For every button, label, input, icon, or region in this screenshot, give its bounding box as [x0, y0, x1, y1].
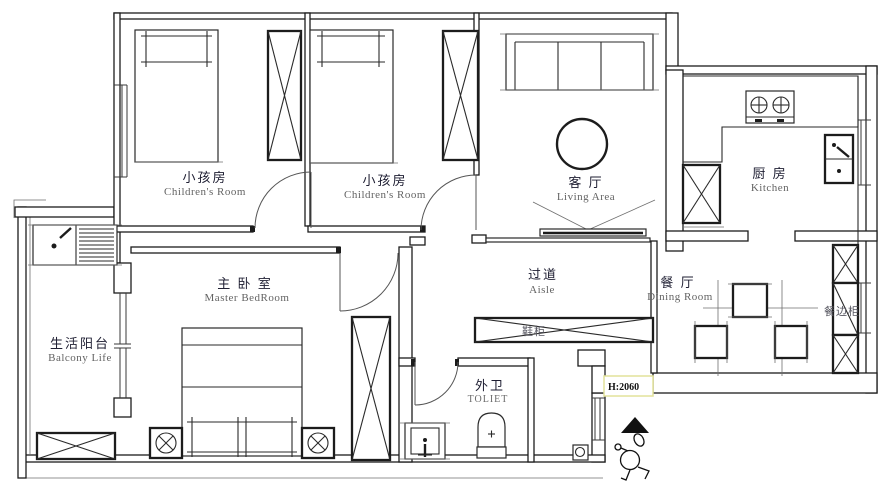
- room-living: 客 厅 Living Area: [486, 34, 659, 242]
- dining-chair-icon: [775, 321, 807, 363]
- room-dining: 餐 厅 Dining Room 餐边柜: [647, 245, 860, 376]
- room-master: 主 卧 室 Master BedRoom: [150, 276, 390, 460]
- room-label-en: Balcony Life: [48, 352, 112, 364]
- door-children2: [421, 175, 476, 230]
- wall-kitchen-bottom-a: [666, 231, 748, 241]
- shoe-cabinet-icon: 鞋柜: [475, 318, 653, 342]
- room-label-en: TOLIET: [468, 394, 509, 405]
- room-label-en: Master BedRoom: [205, 292, 290, 304]
- wall-dining-west: [651, 241, 657, 373]
- entry-annotations: H:2060: [604, 376, 653, 480]
- room-kitchen: 厨 房 Kitchen: [683, 76, 858, 227]
- wall-master-top: [131, 247, 340, 253]
- sofa-icon: [500, 34, 659, 90]
- room-label-en: Aisle: [529, 284, 555, 296]
- room-toilet: 外卫 TOLIET: [400, 378, 588, 460]
- nightstand-icon: [302, 428, 334, 458]
- shoe-cabinet-label: 鞋柜: [522, 324, 546, 338]
- floor-plan-canvas: 小孩房 Children's Room 小孩房 Children's Room: [0, 0, 891, 490]
- room-balcony: 生活阳台 Balcony Life: [28, 225, 122, 459]
- room-label-en: Living Area: [557, 191, 615, 203]
- wall-step-kitchen: [666, 13, 678, 70]
- toilet-icon: [477, 413, 506, 458]
- door-jamb: [411, 359, 415, 366]
- room-label-en: Children's Room: [344, 189, 426, 201]
- wall-vestibule-east: [592, 393, 605, 462]
- room-label-en: Kitchen: [751, 182, 789, 194]
- floor-plan-page: 小孩房 Children's Room 小孩房 Children's Room: [0, 0, 891, 490]
- dining-chair-icon: [695, 321, 727, 363]
- wall-aisle-chunk: [410, 237, 425, 245]
- wall-kitchen-west: [666, 70, 683, 251]
- room-children-2: 小孩房 Children's Room: [310, 30, 478, 201]
- wall-kitchen-top: [666, 66, 877, 74]
- dining-table-icon: [728, 284, 772, 317]
- round-table-icon: [557, 119, 607, 169]
- door-toilet: [415, 362, 458, 405]
- room-label-zh: 小孩房: [362, 173, 407, 188]
- north-arrow-icon: [621, 417, 649, 433]
- wall-master-west-upper: [114, 263, 131, 293]
- wall-balcony-left: [18, 207, 26, 478]
- wall-kitchen-bottom-b: [795, 231, 877, 241]
- wardrobe-icon: [443, 31, 478, 160]
- window-master-balcony: [114, 293, 131, 398]
- room-label-zh: 过道: [528, 267, 558, 282]
- wall-children-bottom-b: [308, 226, 425, 232]
- wall-door2-post: [472, 235, 486, 243]
- door-jamb: [250, 226, 255, 232]
- person-figure-icon: [615, 432, 649, 480]
- room-label-zh: 生活阳台: [50, 336, 110, 351]
- door-jamb: [336, 247, 341, 253]
- room-label-zh: 外卫: [475, 378, 505, 393]
- wall-balcony-top: [15, 207, 114, 217]
- wall-right: [866, 66, 877, 393]
- door-children1: [255, 172, 311, 228]
- room-label-zh: 小孩房: [182, 170, 227, 185]
- room-aisle: 过道 Aisle 鞋柜: [475, 267, 653, 342]
- wall-nook-chunk: [578, 350, 605, 366]
- stove-icon: [746, 91, 794, 123]
- wall-children-divider: [305, 13, 310, 226]
- wall-dining-bottom: [653, 373, 877, 393]
- fridge-icon: [683, 165, 724, 227]
- nightstand-icon: [150, 428, 182, 458]
- bathroom-sink-icon: [400, 423, 450, 459]
- double-bed-icon: [182, 328, 302, 457]
- wardrobe-icon: [352, 317, 390, 460]
- room-label-en: Dining Room: [647, 291, 713, 303]
- room-label-zh: 客 厅: [568, 175, 603, 190]
- wall-toilet-top-b: [458, 358, 530, 366]
- floor-drain-icon: [573, 445, 588, 460]
- wall-toilet-east: [528, 358, 534, 462]
- wall-master-west-lower: [114, 398, 131, 417]
- bed-icon: [135, 30, 223, 162]
- room-label-zh: 餐 厅: [660, 275, 695, 290]
- room-children-1: 小孩房 Children's Room: [135, 30, 301, 198]
- wall-nook-east: [592, 366, 605, 393]
- tv-console-icon: [486, 200, 655, 242]
- balcony-cabinet-icon: [37, 433, 115, 459]
- room-label-zh: 主 卧 室: [217, 276, 273, 291]
- laundry-sink-icon: [28, 225, 122, 265]
- bed-icon: [310, 30, 398, 163]
- room-label-zh: 厨 房: [752, 166, 787, 181]
- wardrobe-icon: [268, 31, 301, 160]
- sideboard-label: 餐边柜: [824, 304, 860, 318]
- wall-top: [114, 13, 672, 19]
- door-height-label: H:2060: [608, 382, 639, 393]
- room-label-en: Children's Room: [164, 186, 246, 198]
- wall-children-bottom-a: [114, 226, 253, 232]
- sink-icon: [825, 135, 853, 183]
- door-master: [340, 253, 398, 311]
